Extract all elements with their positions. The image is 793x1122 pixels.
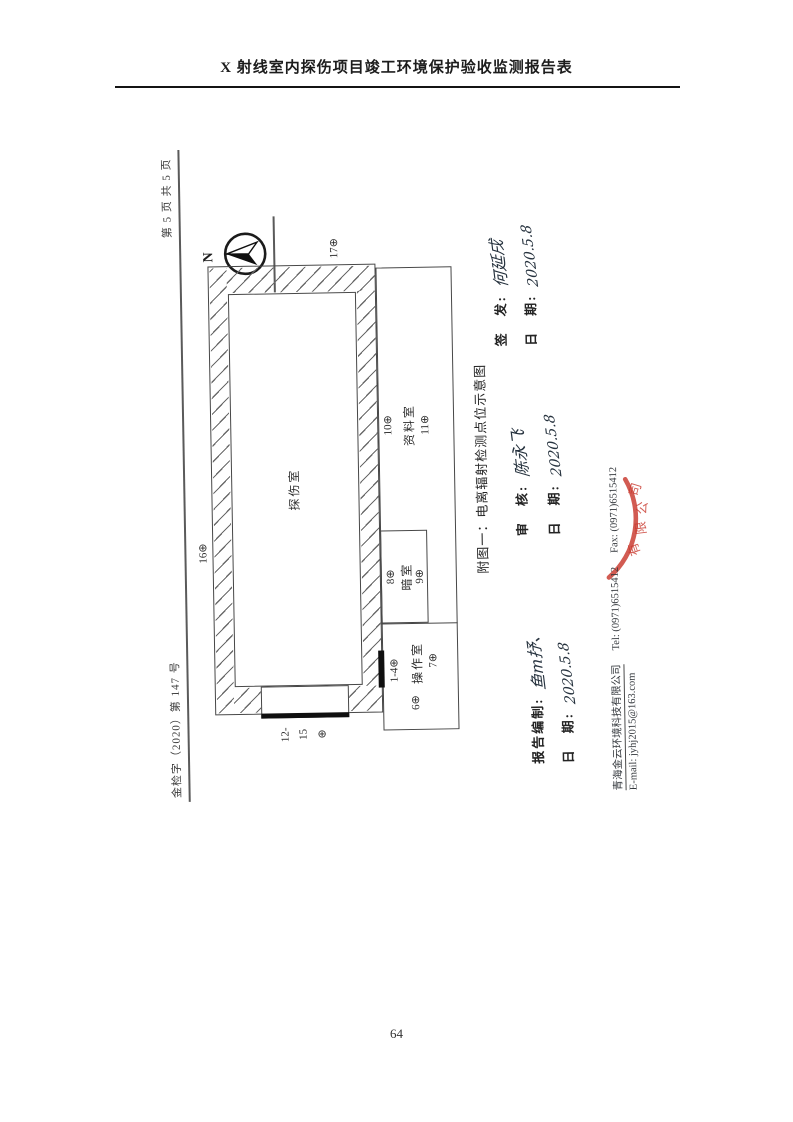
issue-signature: 何延戌	[482, 239, 512, 288]
footer-fax: Fax: (0971)6515412	[608, 467, 621, 553]
stamp-char-2: 限	[633, 521, 649, 536]
review-date: 2020.5.8	[542, 414, 566, 477]
footer-company: 青海金云环境科技有限公司	[611, 664, 626, 790]
title-rule	[115, 86, 680, 88]
point-17: 17⊕	[327, 238, 340, 258]
issue-row: 签 发:何延戌	[485, 239, 511, 347]
op-room-door	[378, 650, 385, 687]
prepared-date-row: 日 期:2020.5.8	[556, 641, 578, 763]
stamp-char-1: 有	[625, 541, 643, 558]
prepared-date: 2020.5.8	[556, 641, 580, 704]
prepared-label: 报告编制:	[530, 697, 546, 764]
point-9: 9⊕	[412, 530, 427, 623]
review-row: 审 核:陈永飞	[506, 429, 532, 537]
footer-tel: Tel: (0971)6515412	[610, 567, 622, 651]
point-7: 7⊕	[426, 653, 439, 668]
footer-email: E-mail: jyhj2015@163.com	[627, 672, 640, 790]
scan-page-info: 第 5 页 共 5 页	[158, 158, 175, 238]
review-signature: 陈永飞	[504, 428, 534, 477]
page-number: 64	[0, 1026, 793, 1042]
shield-door	[261, 712, 349, 719]
issue-date: 2020.5.8	[518, 224, 542, 287]
page-title: X 射线室内探伤项目竣工环境保护验收监测报告表	[0, 56, 793, 77]
prepared-signature: 鱼m抒、	[518, 626, 550, 690]
prepared-row: 报告编制:鱼m抒、	[522, 626, 548, 764]
stamp-char-4: 司	[626, 481, 644, 498]
prepared-date-label: 日 期:	[560, 712, 576, 764]
point-11: 11⊕	[417, 380, 432, 470]
point-12-15-line1: 12-	[279, 727, 291, 742]
issue-date-row: 日 期:2020.5.8	[519, 224, 541, 346]
review-date-row: 日 期:2020.5.8	[542, 414, 564, 536]
scanned-attachment-page: 金检字（2020）第 147 号 第 5 页 共 5 页 N 探伤室 12- 1…	[149, 136, 670, 805]
room-op-label: 操作室	[408, 642, 426, 684]
point-16: 16⊕	[196, 543, 209, 563]
report-page: { "page": { "title": "X 射线室内探伤项目竣工环境保护验收…	[0, 0, 793, 1122]
issue-date-label: 日 期:	[523, 294, 539, 346]
scan-doc-number: 金检字（2020）第 147 号	[166, 661, 184, 798]
room-archive-label: 资料室	[399, 380, 418, 470]
north-label: N	[201, 252, 217, 262]
stamp-char-3: 公	[634, 501, 650, 516]
review-label: 审 核:	[514, 485, 530, 537]
point-1-4: 1-4⊕	[387, 658, 400, 682]
issue-label: 签 发:	[493, 295, 509, 347]
point-10: 10⊕	[380, 380, 395, 470]
review-date-label: 日 期:	[546, 484, 562, 536]
wall-hatch-east	[226, 266, 374, 294]
point-12-15-symbol: ⊕	[316, 729, 329, 738]
point-12-15-line2: 15	[298, 729, 310, 740]
point-6: 6⊕	[409, 695, 422, 710]
point-8: 8⊕	[383, 530, 398, 623]
